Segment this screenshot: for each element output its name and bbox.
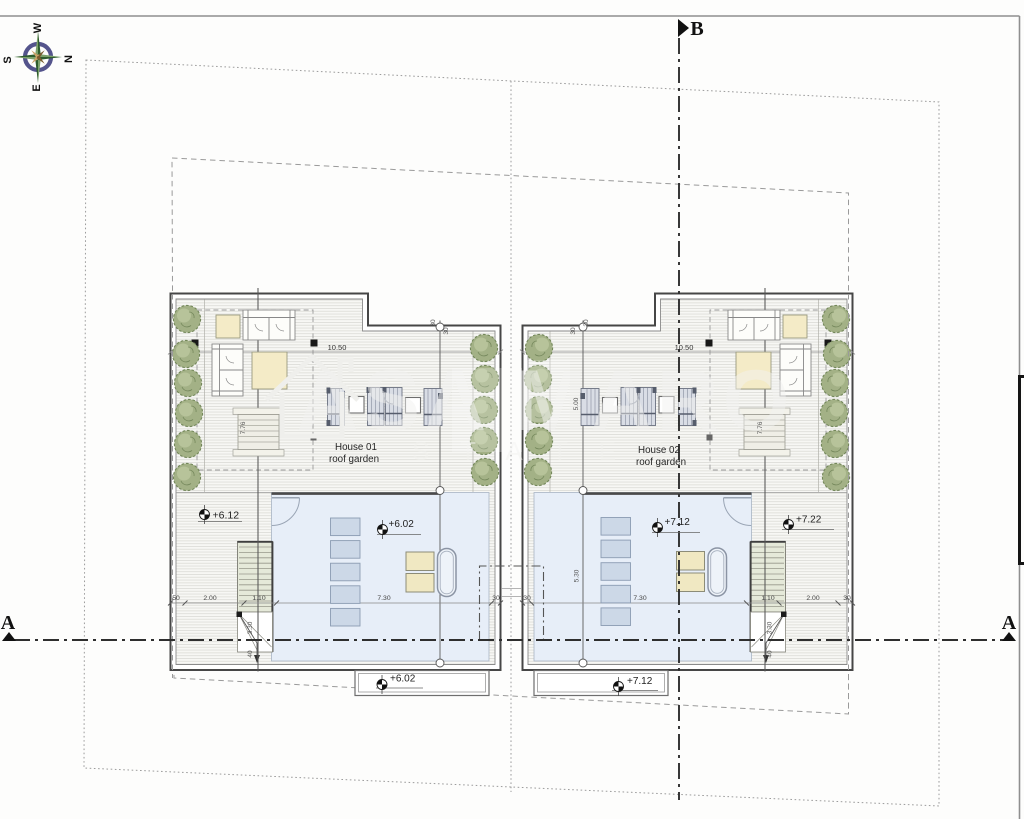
- svg-text:3.30: 3.30: [767, 621, 774, 634]
- svg-text:30: 30: [443, 327, 450, 335]
- svg-text:7.30: 7.30: [633, 595, 646, 602]
- svg-text:30: 30: [583, 319, 590, 327]
- svg-text:W: W: [32, 22, 44, 33]
- svg-text:roof garden: roof garden: [636, 457, 686, 468]
- svg-text:50: 50: [172, 595, 180, 602]
- svg-text:House 01: House 01: [335, 442, 377, 453]
- svg-text:5.30: 5.30: [574, 569, 581, 582]
- svg-text:7.76: 7.76: [240, 421, 247, 434]
- svg-text:30: 30: [492, 595, 500, 602]
- svg-text:+6.02: +6.02: [390, 674, 416, 685]
- svg-text:30: 30: [430, 319, 437, 327]
- svg-text:E: E: [31, 84, 43, 91]
- svg-text:2.00: 2.00: [203, 595, 216, 602]
- svg-text:30: 30: [523, 595, 531, 602]
- svg-text:N: N: [63, 55, 75, 63]
- svg-text:40: 40: [767, 650, 774, 658]
- svg-text:+7.22: +7.22: [796, 515, 822, 526]
- svg-text:+7.12: +7.12: [665, 517, 691, 528]
- svg-text:2.00: 2.00: [806, 595, 819, 602]
- svg-text:A: A: [1002, 612, 1017, 634]
- svg-text:1.10: 1.10: [252, 595, 265, 602]
- svg-text:30: 30: [843, 595, 851, 602]
- svg-text:30: 30: [570, 327, 577, 335]
- svg-text:House 02: House 02: [638, 445, 680, 456]
- svg-text:7.76: 7.76: [757, 421, 764, 434]
- svg-text:10.50: 10.50: [675, 343, 694, 352]
- svg-text:+6.02: +6.02: [389, 519, 415, 530]
- svg-text:3.30: 3.30: [247, 621, 254, 634]
- svg-text:roof garden: roof garden: [329, 454, 379, 465]
- svg-text:5.00: 5.00: [573, 397, 580, 410]
- svg-text:40: 40: [247, 650, 254, 658]
- svg-text:7.30: 7.30: [377, 595, 390, 602]
- svg-text:1.10: 1.10: [761, 595, 774, 602]
- svg-text:+6.12: +6.12: [213, 510, 240, 522]
- svg-text:S: S: [2, 56, 14, 63]
- svg-text:+7.12: +7.12: [627, 676, 653, 687]
- svg-text:B: B: [690, 18, 703, 40]
- svg-text:10.50: 10.50: [328, 343, 347, 352]
- svg-text:A: A: [1, 612, 16, 634]
